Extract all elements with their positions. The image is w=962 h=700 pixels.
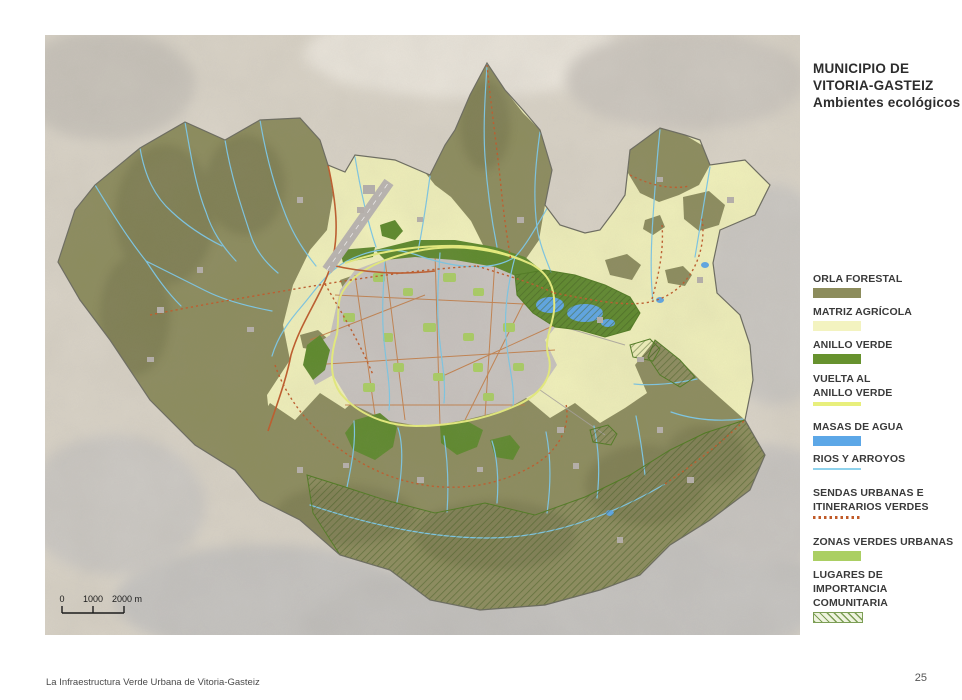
legend-label: ANILLO VERDE [813, 338, 892, 352]
route-swatch [813, 516, 861, 519]
legend-label: ZONAS VERDES URBANAS [813, 535, 953, 549]
legend-label: ORLA FORESTAL [813, 272, 902, 286]
legend-item-sendas-urbanas: SENDAS URBANAS E ITINERARIOS VERDES [813, 486, 929, 519]
legend-item-matriz-agricola: MATRIZ AGRÍCOLA [813, 305, 912, 331]
map-title: MUNICIPIO DE VITORIA-GASTEIZ Ambientes e… [813, 60, 960, 111]
map-title-line2: VITORIA-GASTEIZ [813, 77, 960, 94]
river-swatch [813, 468, 861, 470]
legend-item-lic: LUGARES DE IMPORTANCIA COMUNITARIA [813, 568, 962, 623]
scale-label-zero: 0 [59, 594, 64, 604]
map-title-line1: MUNICIPIO DE [813, 60, 960, 77]
agricultural-swatch [813, 321, 861, 331]
map: 0 1000 2000 m [45, 35, 800, 635]
urban-green-swatch [813, 551, 861, 561]
legend-item-orla-forestal: ORLA FORESTAL [813, 272, 902, 298]
lic-hatch-swatch [813, 612, 863, 623]
legend-label: ITINERARIOS VERDES [813, 500, 929, 514]
legend-label: RIOS Y ARROYOS [813, 452, 905, 466]
legend-label: ANILLO VERDE [813, 386, 892, 400]
legend-label: LUGARES DE [813, 568, 962, 582]
legend-item-masas-de-agua: MASAS DE AGUA [813, 420, 903, 446]
legend-item-anillo-verde: ANILLO VERDE [813, 338, 892, 364]
ring-route-swatch [813, 402, 861, 406]
legend-item-vuelta-anillo: VUELTA AL ANILLO VERDE [813, 372, 892, 406]
legend-panel: MUNICIPIO DE VITORIA-GASTEIZ Ambientes e… [810, 0, 962, 700]
green-ring-swatch [813, 354, 861, 364]
legend-label: IMPORTANCIA COMUNITARIA [813, 582, 962, 610]
legend-item-rios-arroyos: RIOS Y ARROYOS [813, 452, 905, 470]
document-page: 0 1000 2000 m MUNICIPIO DE VITORIA-GASTE… [0, 0, 962, 700]
legend-label: VUELTA AL [813, 372, 892, 386]
scale-label-mid: 1000 [83, 594, 103, 604]
legend-label: MASAS DE AGUA [813, 420, 903, 434]
scale-label-end: 2000 m [112, 594, 142, 604]
map-canvas: 0 1000 2000 m [45, 35, 800, 635]
legend-label: SENDAS URBANAS E [813, 486, 929, 500]
map-subtitle: Ambientes ecológicos [813, 94, 960, 111]
water-swatch [813, 436, 861, 446]
forest-swatch [813, 288, 861, 298]
footer-caption: La Infraestructura Verde Urbana de Vitor… [46, 677, 260, 688]
page-number: 25 [893, 672, 927, 684]
legend-item-zonas-verdes: ZONAS VERDES URBANAS [813, 535, 953, 561]
legend-label: MATRIZ AGRÍCOLA [813, 305, 912, 319]
